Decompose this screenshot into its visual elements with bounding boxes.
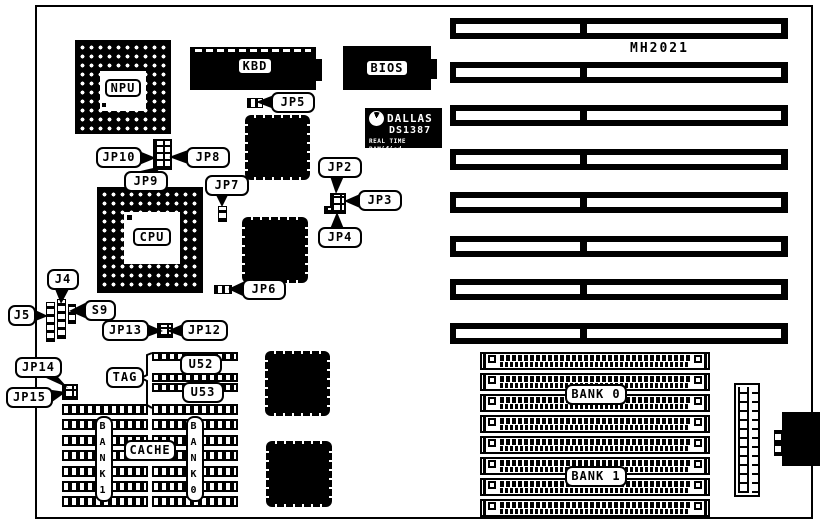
u52-label: U52 <box>180 354 222 375</box>
callout-jp12: JP12 <box>181 320 228 341</box>
callout-jp5: JP5 <box>271 92 315 113</box>
callout-jp13: JP13 <box>102 320 149 341</box>
motherboard-diagram: NPU KBD BIOS DALLAS DS1387 REAL TIME RAM… <box>0 0 821 527</box>
callout-jp15: JP15 <box>6 387 53 408</box>
callout-jp14: JP14 <box>15 357 62 378</box>
tag-label: TAG <box>106 367 144 388</box>
memory-bank1-label: BANK 1 <box>565 466 627 487</box>
callout-j4: J4 <box>47 269 79 290</box>
callout-jp8: JP8 <box>186 147 230 168</box>
callout-jp2: JP2 <box>318 157 362 178</box>
memory-bank0-label: BANK 0 <box>565 384 627 405</box>
cache-bank0-vertical-label: BANK0 <box>186 416 204 502</box>
cache-bank1-vertical-label: BANK1 <box>95 416 113 502</box>
cache-label: CACHE <box>124 440 176 461</box>
callout-jp3: JP3 <box>358 190 402 211</box>
callout-jp7: JP7 <box>205 175 249 196</box>
u53-label: U53 <box>182 382 224 403</box>
callout-jp9: JP9 <box>124 171 168 192</box>
callout-s9: S9 <box>84 300 116 321</box>
callout-jp6: JP6 <box>242 279 286 300</box>
callout-j5: J5 <box>8 305 36 326</box>
callout-jp10: JP10 <box>96 147 142 168</box>
callout-jp4: JP4 <box>318 227 362 248</box>
